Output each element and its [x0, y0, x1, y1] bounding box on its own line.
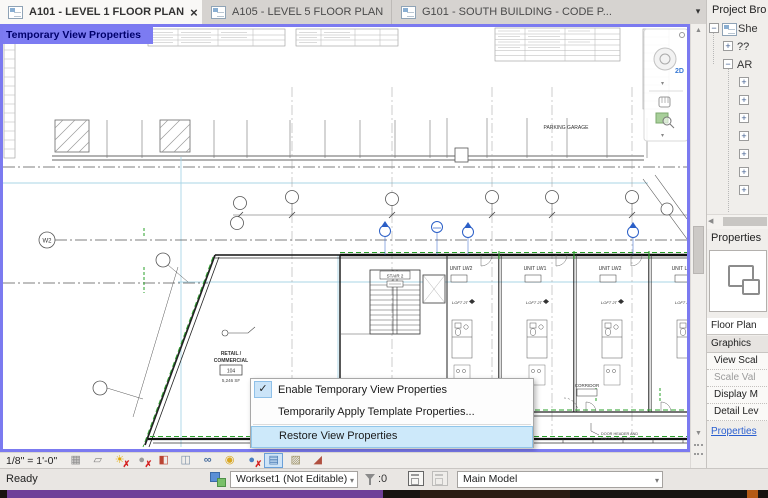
loft-elevation-tag: LOFT 2T	[452, 300, 469, 305]
unit-label: UNIT LW1	[672, 266, 687, 272]
menu-item-temporarily-apply-template[interactable]: Temporarily Apply Template Properties...	[251, 401, 533, 423]
sheets-icon	[722, 23, 737, 36]
workset-value: Workset1 (Not Editable)	[236, 473, 347, 485]
view-control-bar: 1/8" = 1'-0" ▦ ▱ ☀ ● ◧ ◫ ∞ ◉ ● ▤ ▨ ◢	[0, 452, 690, 468]
floor-plan-view-icon	[8, 6, 23, 19]
taskbar-segment	[420, 490, 570, 498]
taskbar	[0, 490, 768, 498]
type-selector[interactable]	[709, 250, 767, 312]
selection-filter-icon[interactable]	[364, 474, 376, 486]
tree-guide	[713, 32, 714, 64]
status-bar: Ready Workset1 (Not Editable) ▾ :0 Main …	[0, 468, 768, 491]
collapse-icon[interactable]: −	[723, 59, 733, 69]
tab-label: A101 - LEVEL 1 FLOOR PLAN	[29, 6, 184, 18]
temporary-view-properties-banner: Temporary View Properties	[3, 27, 153, 44]
close-tab-icon[interactable]: ×	[190, 6, 198, 19]
browser-node[interactable]: ??	[737, 40, 749, 56]
expand-icon[interactable]: +	[739, 131, 749, 141]
right-dock-panel: Project Bro − She + ?? − AR + + + + + + …	[706, 0, 768, 468]
exclude-options-icon	[432, 471, 448, 486]
property-row-detail-level[interactable]: Detail Lev	[707, 404, 768, 421]
reveal-constraints-icon[interactable]: ◢	[308, 453, 327, 468]
unit-label: UNIT LW1	[524, 266, 547, 272]
chevron-down-icon: ▾	[655, 473, 659, 488]
menu-item-label: Restore View Properties	[279, 430, 397, 442]
floor-plan-view-icon	[401, 6, 416, 19]
grid-bubble-label: W2	[43, 239, 53, 245]
tree-guide	[728, 68, 729, 212]
expand-icon[interactable]: +	[739, 77, 749, 87]
room-number-tag: 104	[227, 369, 236, 375]
wheel-2d-badge: 2D	[675, 68, 684, 75]
tab-label: A105 - LEVEL 5 FLOOR PLAN	[232, 6, 383, 18]
steering-wheel-icon	[654, 48, 676, 70]
chevron-down-icon: ▾	[350, 473, 354, 488]
context-menu: ✓ Enable Temporary View Properties Tempo…	[250, 378, 534, 448]
expand-icon[interactable]: +	[739, 167, 749, 177]
scrollbar-thumb[interactable]	[693, 226, 704, 274]
navbar-more-icon: ▾	[661, 133, 664, 139]
unit-label: UNIT LW2	[599, 266, 622, 272]
room-area: 5,246 SF	[222, 378, 241, 383]
navbar-expand-icon: ▾	[661, 81, 664, 87]
menu-item-enable-temporary-view-properties[interactable]: ✓ Enable Temporary View Properties	[251, 379, 533, 401]
property-row-view-scale[interactable]: View Scal	[707, 353, 768, 370]
tab-g101-code-plan[interactable]: G101 - SOUTH BUILDING - CODE P...	[393, 0, 688, 24]
canvas-vertical-scrollbar[interactable]: ▲ ▼	[690, 24, 706, 468]
floor-plan-type-icon	[742, 279, 760, 295]
expand-icon[interactable]: +	[739, 149, 749, 159]
shadows-icon[interactable]: ●	[132, 453, 151, 468]
retail-label: RETAIL /	[221, 351, 242, 357]
section-markers[interactable]	[380, 221, 639, 255]
temporary-view-properties-icon[interactable]: ▤	[264, 453, 283, 468]
mini-schedule-tables	[4, 28, 669, 158]
unit-label: UNIT LW2	[450, 266, 473, 272]
project-browser-title: Project Bro	[712, 4, 766, 16]
stair-label: STAIR 2	[387, 274, 404, 279]
taskbar-segment	[7, 490, 383, 498]
menu-separator	[253, 424, 531, 425]
view-type-row[interactable]: Floor Plan	[707, 318, 768, 335]
keynote: DOOR HEADER AND	[601, 432, 638, 436]
browser-horizontal-scrollbar[interactable]: ◀	[707, 214, 768, 229]
menu-item-label: Temporarily Apply Template Properties...	[278, 406, 475, 418]
expand-icon[interactable]: +	[739, 95, 749, 105]
taskbar-segment	[747, 490, 758, 498]
menu-item-restore-view-properties[interactable]: Restore View Properties	[251, 426, 533, 448]
parking-garage-label: PARKING GARAGE	[544, 125, 590, 131]
scroll-left-icon[interactable]: ◀	[708, 217, 713, 225]
menu-item-label: Enable Temporary View Properties	[278, 384, 447, 396]
collapse-icon[interactable]: −	[709, 23, 719, 33]
sun-path-icon[interactable]: ☀	[110, 453, 129, 468]
browser-node[interactable]: AR	[737, 58, 752, 74]
reveal-hidden-elements-icon[interactable]: ◉	[220, 453, 239, 468]
graphics-section-header[interactable]: Graphics	[707, 336, 768, 353]
scroll-up-icon[interactable]: ▲	[691, 27, 706, 34]
tab-list-chevron-icon[interactable]: ▾	[691, 6, 705, 17]
properties-panel-title: Properties	[711, 232, 761, 244]
retail-label: COMMERCIAL	[214, 358, 248, 364]
scrollbar-thumb[interactable]	[723, 217, 767, 226]
temporary-hide-isolate-icon[interactable]: ∞	[198, 453, 217, 468]
detail-level-icon[interactable]: ▦	[66, 453, 85, 468]
active-workset-selector[interactable]: Workset1 (Not Editable) ▾	[230, 471, 358, 488]
keynote: KNOCK-OUT WALL	[601, 437, 635, 441]
analytical-model-icon[interactable]: ▨	[286, 453, 305, 468]
view-tab-bar: A101 - LEVEL 1 FLOOR PLAN × A105 - LEVEL…	[0, 0, 768, 24]
worksharing-display-icon[interactable]: ●	[242, 453, 261, 468]
property-row-display-model[interactable]: Display M	[707, 387, 768, 404]
design-option-value: Main Model	[463, 473, 517, 485]
design-options-dialog-icon[interactable]	[408, 471, 424, 486]
expand-icon[interactable]: +	[739, 185, 749, 195]
navigation-bar[interactable]: 2D ▾ ▾	[644, 29, 687, 141]
property-row-scale-value: Scale Val	[707, 370, 768, 387]
expand-icon[interactable]: +	[739, 113, 749, 123]
loft-elevation-tag: LOFT 2T	[526, 300, 543, 305]
scale-button[interactable]: 1/8" = 1'-0"	[6, 455, 57, 467]
tab-a105-level5[interactable]: A105 - LEVEL 5 FLOOR PLAN	[203, 0, 392, 24]
properties-help-link[interactable]: Properties	[711, 426, 757, 437]
stair-core	[340, 270, 445, 334]
tab-label: G101 - SOUTH BUILDING - CODE P...	[422, 6, 612, 18]
visual-style-icon[interactable]: ▱	[88, 453, 107, 468]
browser-node-sheets[interactable]: She	[738, 22, 758, 38]
loft-elevation-tag: LOFT 2T	[675, 300, 687, 305]
checkmark-icon: ✓	[254, 381, 272, 398]
floor-plan-view-icon	[211, 6, 226, 19]
design-option-selector[interactable]: Main Model ▾	[457, 471, 663, 488]
loft-elevation-tag: LOFT 2T	[601, 300, 618, 305]
resize-grip[interactable]	[694, 444, 703, 455]
selection-count: :0	[378, 473, 387, 485]
crop-region-icon[interactable]: ◫	[176, 453, 195, 468]
corridor-label: CORRIDOR	[575, 383, 600, 388]
worksets-icon	[210, 472, 226, 487]
status-text: Ready	[6, 473, 38, 485]
tab-a101-level1[interactable]: A101 - LEVEL 1 FLOOR PLAN ×	[0, 0, 202, 24]
scroll-down-icon[interactable]: ▼	[691, 430, 706, 437]
revit-window: A101 - LEVEL 1 FLOOR PLAN × A105 - LEVEL…	[0, 0, 768, 498]
crop-view-icon[interactable]: ◧	[154, 453, 173, 468]
expand-icon[interactable]: +	[723, 41, 733, 51]
